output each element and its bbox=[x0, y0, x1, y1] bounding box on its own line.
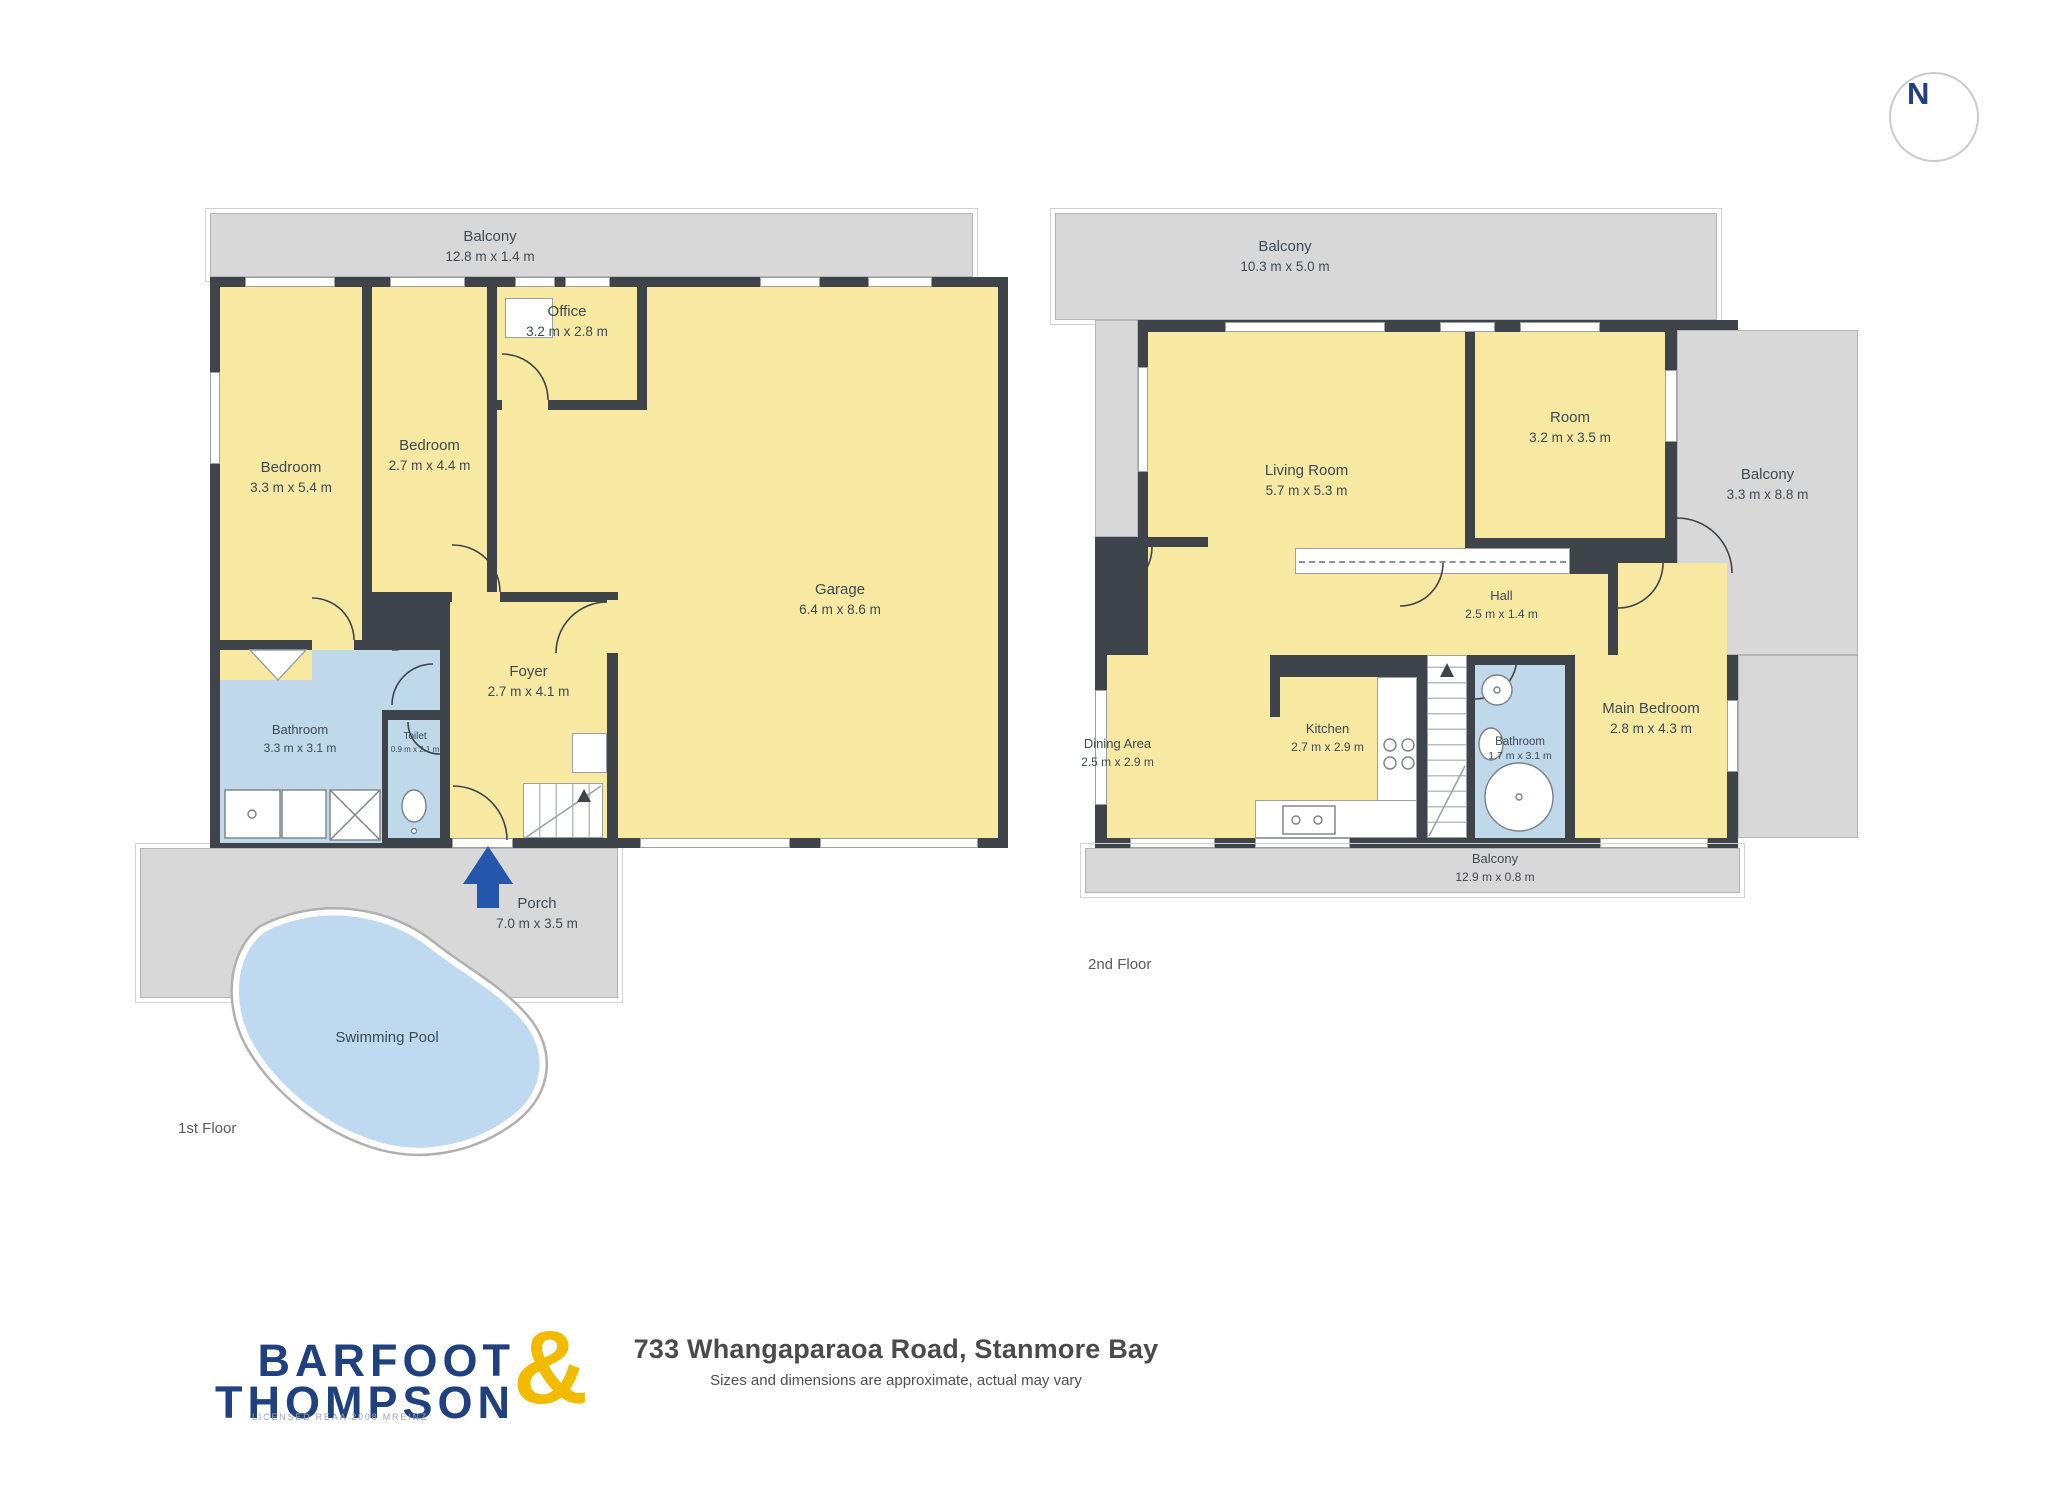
f2-kitchen-wall-stub bbox=[1270, 667, 1280, 717]
f1-window bbox=[390, 277, 465, 287]
f2-room-kitchen bbox=[1270, 677, 1377, 800]
f1-doorgap-foyer bbox=[607, 600, 618, 653]
floor1-caption: 1st Floor bbox=[178, 1120, 236, 1137]
f2-kitchen-wall-top bbox=[1270, 667, 1417, 677]
f1-wall-bed2-right bbox=[487, 287, 497, 602]
f2-living-wall-stub bbox=[1148, 537, 1208, 547]
f1-window bbox=[565, 277, 610, 287]
f1-room-toilet bbox=[388, 720, 440, 838]
logo-license-text: LICENSED REAA 2008 MREINZ bbox=[160, 1412, 520, 1422]
barfoot-thompson-logo: BARFOOT THOMPSON & LICENSED REAA 2008 MR… bbox=[75, 1332, 635, 1442]
f1-window bbox=[868, 277, 932, 287]
label-f1-pool: Swimming Pool bbox=[300, 1026, 474, 1050]
f2-stairs bbox=[1427, 655, 1467, 838]
f2-balcony-top-area bbox=[1055, 213, 1717, 320]
f1-bedroom1-closet-nook bbox=[220, 650, 312, 680]
f2-window bbox=[1727, 700, 1738, 772]
title-block: 733 Whangaparaoa Road, Stanmore Bay Size… bbox=[560, 1334, 1232, 1389]
page-title: 733 Whangaparaoa Road, Stanmore Bay bbox=[560, 1334, 1232, 1365]
f2-kitchen-counter-bottom bbox=[1255, 800, 1417, 838]
f2-window bbox=[1665, 370, 1677, 442]
f2-wardrobe bbox=[1295, 548, 1570, 574]
f2-window bbox=[1600, 838, 1708, 848]
f2-room-main-bedroom bbox=[1575, 655, 1727, 838]
floorplan-page: Balcony12.8 m x 1.4 m Bedroom3.3 m x 5.4… bbox=[0, 0, 2048, 1494]
compass-rose: N bbox=[1889, 72, 1979, 162]
f2-window bbox=[1520, 322, 1600, 332]
f2-window bbox=[1255, 838, 1350, 848]
f1-window bbox=[245, 277, 335, 287]
f1-doorgap-bedroom-2 bbox=[452, 592, 500, 602]
f1-doorgap-bedroom-1 bbox=[312, 640, 354, 650]
f1-entry-doorgap bbox=[452, 838, 513, 848]
f1-porch-area bbox=[140, 848, 618, 998]
f2-window bbox=[1095, 690, 1107, 805]
wardrobe-rail bbox=[1299, 561, 1566, 563]
f1-balcony-area bbox=[210, 213, 973, 277]
f1-window bbox=[760, 277, 820, 287]
f2-window bbox=[1130, 838, 1215, 848]
f1-room-bedroom-2 bbox=[372, 287, 487, 592]
f1-window bbox=[515, 277, 555, 287]
f2-window bbox=[1138, 367, 1148, 472]
f2-room-room bbox=[1475, 332, 1665, 538]
f1-office-wall-right bbox=[637, 287, 647, 410]
f2-room-bathroom bbox=[1475, 665, 1565, 838]
f2-balcony-bottom-area bbox=[1085, 848, 1740, 893]
f1-window bbox=[640, 838, 790, 848]
page-disclaimer: Sizes and dimensions are approximate, ac… bbox=[560, 1372, 1232, 1389]
floor2-caption: 2nd Floor bbox=[1088, 956, 1151, 973]
f1-room-bathroom bbox=[220, 710, 382, 843]
f2-balcony-right-lower bbox=[1738, 655, 1858, 838]
compass-north-label: N bbox=[1907, 76, 1929, 112]
f1-window bbox=[820, 838, 978, 848]
f1-room-bedroom-1 bbox=[220, 287, 362, 640]
f1-stair-landing bbox=[572, 733, 607, 773]
f2-room-dining bbox=[1107, 655, 1270, 838]
f2-room-hall bbox=[1395, 574, 1608, 655]
f2-balcony-left-strip bbox=[1095, 320, 1138, 537]
f2-window bbox=[1225, 322, 1385, 332]
f2-window bbox=[1440, 322, 1495, 332]
f1-stairs bbox=[523, 783, 603, 838]
f1-doorgap-office bbox=[502, 400, 548, 410]
f1-window bbox=[210, 372, 220, 464]
f1-office-window-box bbox=[505, 298, 553, 338]
f2-bedroom-nook bbox=[1618, 563, 1727, 655]
